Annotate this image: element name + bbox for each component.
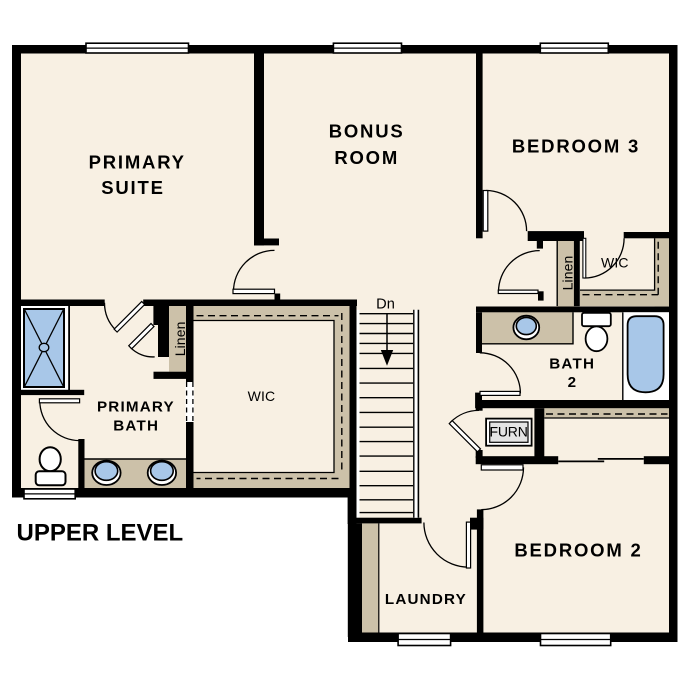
svg-text:Linen: Linen — [172, 322, 188, 357]
svg-text:BATH: BATH — [113, 418, 159, 435]
svg-text:UPPER LEVEL: UPPER LEVEL — [17, 519, 184, 546]
svg-text:WIC: WIC — [248, 388, 276, 404]
svg-text:SUITE: SUITE — [101, 177, 164, 198]
svg-text:Dn: Dn — [376, 297, 395, 313]
svg-text:BEDROOM 3: BEDROOM 3 — [512, 136, 640, 157]
svg-text:ROOM: ROOM — [334, 147, 399, 168]
svg-text:WIC: WIC — [601, 254, 629, 270]
svg-text:PRIMARY: PRIMARY — [89, 152, 186, 173]
svg-text:BONUS: BONUS — [329, 120, 405, 141]
svg-text:2: 2 — [568, 374, 578, 391]
svg-text:FURN: FURN — [489, 423, 527, 439]
svg-text:Linen: Linen — [560, 256, 576, 291]
svg-text:PRIMARY: PRIMARY — [97, 399, 175, 416]
svg-text:BEDROOM 2: BEDROOM 2 — [514, 540, 642, 561]
svg-text:LAUNDRY: LAUNDRY — [385, 591, 467, 608]
svg-text:BATH: BATH — [549, 355, 595, 372]
